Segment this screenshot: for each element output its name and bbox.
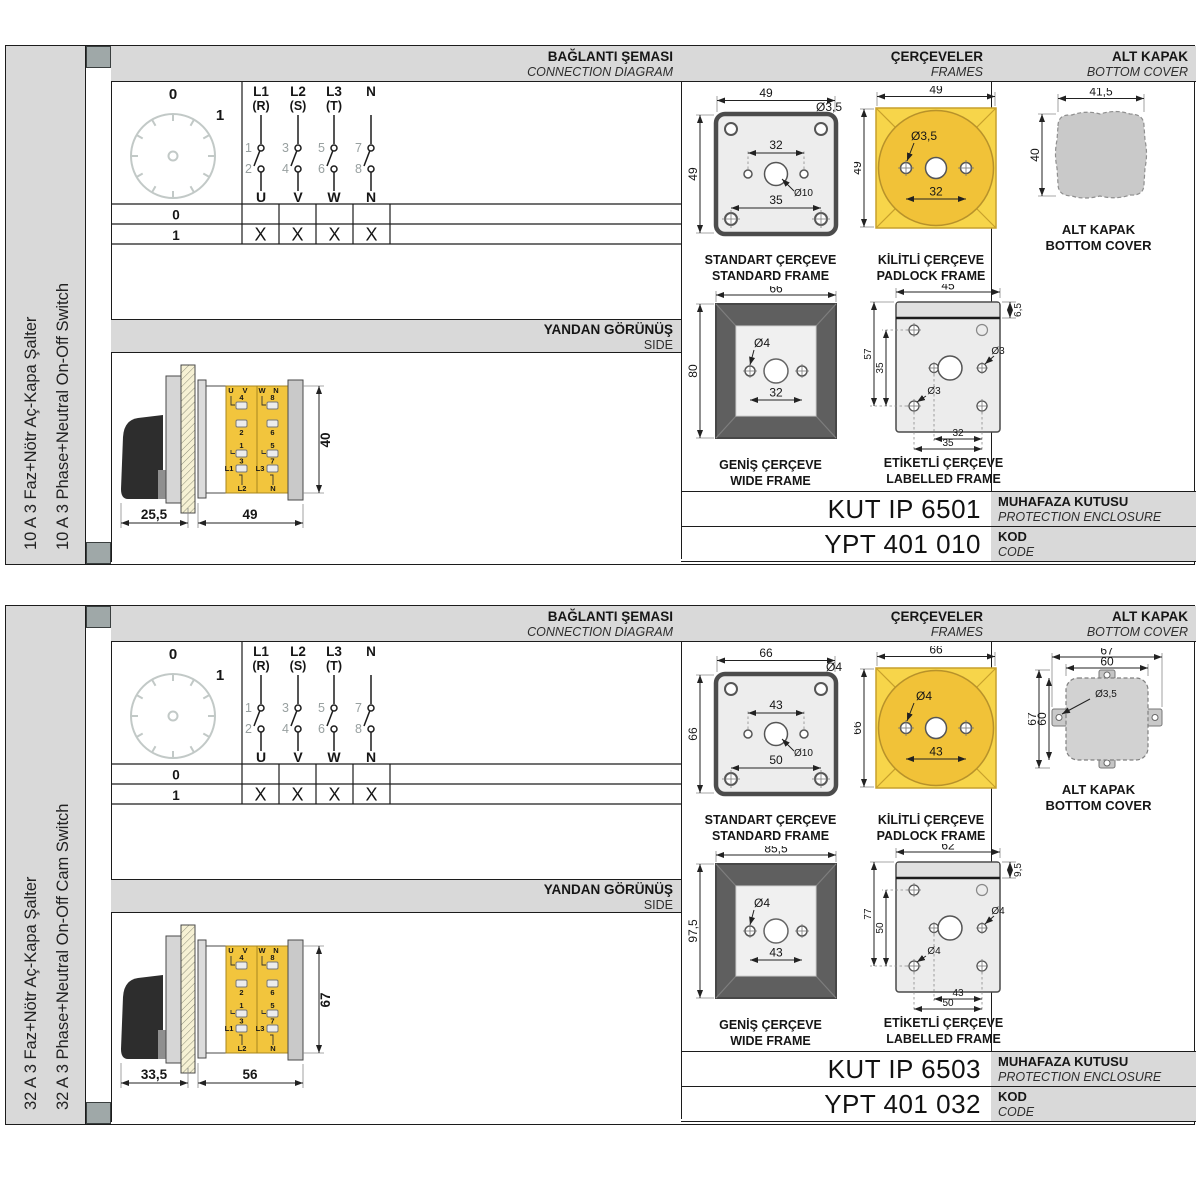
dim-bottom-spacing: 50 (769, 753, 783, 767)
contact-in: 5 (318, 141, 325, 155)
dim-hole: Ø4 (754, 336, 770, 350)
connection-diagram: 0 1 L1 (R) 1 2 U L2 (S) 3 4 V L3 (T) (111, 642, 681, 806)
dial-position-off: 0 (169, 86, 177, 103)
phase-label: L1 (253, 644, 269, 659)
phase-label: L3 (326, 84, 342, 99)
caption-en: STANDARD FRAME (678, 829, 863, 845)
dial-position-on: 1 (216, 107, 224, 124)
header-frames-en: FRAMES (681, 625, 983, 640)
dim-center-hole: Ø10 (794, 188, 813, 199)
padlock-frame-drawing: 49 49 Ø3,5 32 (854, 86, 1009, 251)
enclosure-label-en: PROTECTION ENCLOSURE (998, 1070, 1192, 1085)
shaft-hole (926, 718, 947, 739)
caption-tr: ALT KAPAK (1001, 222, 1196, 238)
code-label: KOD CODE (991, 526, 1196, 561)
dim-width-inner: 60 (1100, 655, 1114, 669)
term-l2: L2 (238, 484, 247, 493)
caption-tr: KİLİTLİ ÇERÇEVE (851, 253, 1011, 269)
header-bottom-cover: ALT KAPAK BOTTOM COVER (991, 46, 1196, 82)
dim-height: 49 (854, 161, 864, 175)
product-title-english: 10 A 3 Phase+Neutral On-Off Switch (54, 58, 73, 550)
connection-diagram: 0 1 L1 (R) 1 2 U L2 (S) 3 4 V L3 (T) (111, 82, 681, 246)
panel-hatch (181, 925, 195, 1073)
enclosure-label: MUHAFAZA KUTUSU PROTECTION ENCLOSURE (991, 1051, 1196, 1086)
product-title-english: 32 A 3 Phase+Neutral On-Off Cam Switch (54, 618, 73, 1110)
dim-handle-depth: 33,5 (141, 1067, 168, 1082)
side-view-drawing: U V W N 4 2 1 3 8 6 5 7 L1 L2 L3 N 40 25… (118, 358, 418, 543)
caption-en: STANDARD FRAME (678, 269, 863, 285)
dim-hole-right: Ø3 (991, 346, 1005, 357)
dim-center-hole: Ø10 (794, 748, 813, 759)
product-section: 10 A 3 Faz+Nötr Aç-Kapa Şalter 10 A 3 Ph… (5, 45, 1195, 565)
contact-out: 4 (282, 722, 289, 736)
switch-handle (121, 975, 163, 1059)
dim-strip: 6,5 (1013, 303, 1024, 317)
contact-out: 8 (355, 162, 362, 176)
table-pos-1: 1 (172, 228, 180, 243)
header-connection-diagram: BAĞLANTI ŞEMASI CONNECTION DIAGRAM (111, 46, 681, 82)
contact-out: 4 (282, 162, 289, 176)
dim-hole-right: Ø4 (991, 906, 1005, 917)
dim-bottom-inner: 43 (952, 988, 964, 999)
wide-frame-caption: GENİŞ ÇERÇEVE WIDE FRAME (678, 458, 863, 489)
contact-out: 6 (318, 722, 325, 736)
enclosure-code: KUT IP 6501 (681, 491, 991, 526)
side-view-header-tr: YANDAN GÖRÜNÜŞ (111, 882, 673, 898)
dim-height: 66 (688, 727, 700, 741)
term-l1: L1 (225, 464, 234, 473)
switch-dial: 0 1 (131, 646, 224, 758)
term-5: 5 (270, 441, 274, 450)
code-label-en: CODE (998, 545, 1192, 560)
contact-in: 1 (245, 141, 252, 155)
contact-out: 8 (355, 722, 362, 736)
header-connection-tr: BAĞLANTI ŞEMASI (111, 609, 673, 625)
dim-height: 66 (854, 721, 864, 735)
phase-label: L2 (290, 84, 306, 99)
term-1: 1 (239, 1001, 243, 1010)
dim-width: 45 (941, 284, 955, 293)
shaft-hole (926, 158, 947, 179)
dim-hole-spacing: 32 (929, 185, 943, 199)
dim-side-height: 67 (318, 992, 333, 1007)
phase-label: L2 (290, 644, 306, 659)
product-title-band: 32 A 3 Faz+Nötr Aç-Kapa Şalter 32 A 3 Ph… (6, 606, 86, 1124)
dim-bottom-outer: 35 (942, 438, 954, 449)
code-label-tr: KOD (998, 1089, 1192, 1105)
dim-width: 66 (769, 286, 783, 296)
index-tab-bottom (86, 542, 111, 564)
dim-handle-depth: 25,5 (141, 507, 168, 522)
mounting-collar (198, 380, 206, 498)
code-label-tr: KOD (998, 529, 1192, 545)
labelled-frame-drawing: 45 6,5 57 35 Ø3 Ø3 32 35 (858, 284, 1033, 454)
term-3: 3 (239, 457, 243, 466)
contact-column-1: L1 (R) 1 2 U (245, 84, 270, 205)
shaft-hole (764, 919, 788, 943)
term-w: W (258, 946, 266, 955)
labelled-frame-caption: ETİKETLİ ÇERÇEVE LABELLED FRAME (851, 1016, 1036, 1047)
code-label: KOD CODE (991, 1086, 1196, 1121)
caption-en: LABELLED FRAME (851, 472, 1036, 488)
padlock-frame-caption: KİLİTLİ ÇERÇEVE PADLOCK FRAME (851, 253, 1011, 284)
table-mark: X (365, 225, 377, 245)
contact-in: 3 (282, 141, 289, 155)
labelled-frame-drawing: 62 9,5 77 50 Ø4 Ø4 43 50 (858, 844, 1033, 1014)
header-frames: ÇERÇEVELER FRAMES (681, 46, 991, 82)
catalog-page: 10 A 3 Faz+Nötr Aç-Kapa Şalter 10 A 3 Ph… (0, 0, 1200, 1200)
dim-hole: Ø4 (916, 689, 932, 703)
dim-hole: Ø3,5 (1095, 689, 1117, 700)
caption-en: PADLOCK FRAME (851, 269, 1011, 285)
handle-step (158, 470, 166, 499)
index-tab-top (86, 46, 111, 68)
side-view-header: YANDAN GÖRÜNÜŞ SIDE (111, 879, 681, 913)
phase-label: L3 (326, 644, 342, 659)
term-8: 8 (270, 953, 274, 962)
terminal-label: W (327, 189, 341, 205)
header-cover-tr: ALT KAPAK (991, 609, 1188, 625)
header-cover-en: BOTTOM COVER (991, 625, 1188, 640)
phase-label: N (366, 644, 376, 659)
side-view-header: YANDAN GÖRÜNÜŞ SIDE (111, 319, 681, 353)
table-mark: X (328, 225, 340, 245)
table-pos-0: 0 (172, 768, 180, 783)
phase-label: N (366, 84, 376, 99)
padlock-frame-drawing: 66 66 Ø4 43 (854, 646, 1009, 811)
shaft-hole (764, 359, 788, 383)
dial-position-on: 1 (216, 667, 224, 684)
table-mark: X (328, 785, 340, 805)
phase-sub: (S) (290, 659, 307, 673)
table-mark: X (254, 785, 266, 805)
term-l3: L3 (256, 464, 265, 473)
caption-en: PADLOCK FRAME (851, 829, 1011, 845)
table-pos-0: 0 (172, 208, 180, 223)
dim-height-inner: 60 (1035, 712, 1049, 726)
term-2: 2 (239, 988, 243, 997)
term-nn: N (270, 484, 275, 493)
terminal-label: N (366, 189, 376, 205)
dim-hole-spacing: 32 (769, 138, 783, 152)
table-mark: X (254, 225, 266, 245)
bottom-cover-drawing: 67 60 67 60 Ø3,5 (1028, 648, 1178, 778)
phase-sub: (R) (252, 659, 269, 673)
end-cap (288, 940, 303, 1060)
dim-hole-spacing: 32 (769, 386, 783, 400)
header-connection-diagram: BAĞLANTI ŞEMASI CONNECTION DIAGRAM (111, 606, 681, 642)
caption-tr: GENİŞ ÇERÇEVE (678, 1018, 863, 1034)
terminal-label: V (293, 189, 303, 205)
dial-hub (169, 152, 178, 161)
contact-out: 6 (318, 162, 325, 176)
header-cover-en: BOTTOM COVER (991, 65, 1188, 80)
dim-strip: 9,5 (1013, 863, 1024, 877)
contact-in: 5 (318, 701, 325, 715)
term-6: 6 (270, 988, 274, 997)
shaft-hole (938, 916, 962, 940)
contact-column-2: L2 (S) 3 4 V (282, 84, 306, 205)
contact-column-4: N 7 8 N (355, 84, 376, 205)
caption-tr: STANDART ÇERÇEVE (678, 813, 863, 829)
bottom-cover-caption: ALT KAPAK BOTTOM COVER (1001, 222, 1196, 255)
dim-v-spacing: 35 (875, 362, 886, 374)
phase-sub: (S) (290, 99, 307, 113)
term-u: U (228, 386, 233, 395)
term-1: 1 (239, 441, 243, 450)
dim-width: 62 (941, 844, 955, 853)
table-pos-1: 1 (172, 788, 180, 803)
caption-tr: ETİKETLİ ÇERÇEVE (851, 1016, 1036, 1032)
header-frames-tr: ÇERÇEVELER (681, 49, 983, 65)
label-strip (897, 863, 999, 878)
handle-step (158, 1030, 166, 1059)
contact-column-3: L3 (T) 5 6 W (318, 84, 342, 205)
order-code: YPT 401 010 (681, 526, 991, 561)
header-connection-en: CONNECTION DIAGRAM (111, 65, 673, 80)
caption-tr: STANDART ÇERÇEVE (678, 253, 863, 269)
side-view-header-en: SIDE (111, 338, 673, 353)
table-mark: X (291, 225, 303, 245)
cover-outline (1056, 112, 1147, 199)
wide-frame-caption: GENİŞ ÇERÇEVE WIDE FRAME (678, 1018, 863, 1049)
terminal-label: U (256, 749, 266, 765)
phase-label: L1 (253, 84, 269, 99)
standard-frame-drawing: 49 Ø3,5 49 32 Ø10 35 (688, 86, 858, 251)
header-cover-tr: ALT KAPAK (991, 49, 1188, 65)
dim-width: 66 (759, 646, 773, 660)
contact-in: 7 (355, 701, 362, 715)
product-section: 32 A 3 Faz+Nötr Aç-Kapa Şalter 32 A 3 Ph… (5, 605, 1195, 1125)
bottom-cover-drawing: 41,5 40 (1028, 88, 1178, 218)
dim-width: 41,5 (1089, 88, 1113, 99)
index-tab-bottom (86, 1102, 111, 1124)
shaft-hole (765, 723, 788, 746)
code-label-en: CODE (998, 1105, 1192, 1120)
dim-width: 49 (929, 86, 943, 97)
term-u: U (228, 946, 233, 955)
dim-hole-spacing: 43 (929, 745, 943, 759)
terminal-label: U (256, 189, 266, 205)
term-3: 3 (239, 1017, 243, 1026)
dim-bottom-spacing: 35 (769, 193, 783, 207)
dim-width: 66 (929, 646, 943, 657)
term-6: 6 (270, 428, 274, 437)
caption-en: WIDE FRAME (678, 1034, 863, 1050)
wide-frame-drawing: 85,5 97,5 Ø4 43 (688, 846, 858, 1016)
header-connection-en: CONNECTION DIAGRAM (111, 625, 673, 640)
side-view-header-en: SIDE (111, 898, 673, 913)
dim-hole: Ø3,5 (911, 129, 937, 143)
panel-hatch (181, 365, 195, 513)
caption-tr: GENİŞ ÇERÇEVE (678, 458, 863, 474)
dim-hole-spacing: 43 (769, 946, 783, 960)
side-view-drawing: U V W N 4 2 1 3 8 6 5 7 L1 L2 L3 N 67 33… (118, 918, 418, 1103)
truth-table: 0 1 X X X X (111, 204, 681, 245)
term-l3: L3 (256, 1024, 265, 1033)
caption-tr: KİLİTLİ ÇERÇEVE (851, 813, 1011, 829)
product-title-turkish: 32 A 3 Faz+Nötr Aç-Kapa Şalter (22, 618, 41, 1110)
enclosure-label: MUHAFAZA KUTUSU PROTECTION ENCLOSURE (991, 491, 1196, 526)
switch-dial: 0 1 (131, 86, 224, 198)
dim-hole-spacing: 43 (769, 698, 783, 712)
header-frames-tr: ÇERÇEVELER (681, 609, 983, 625)
standard-frame-drawing: 66 Ø4 66 43 Ø10 50 (688, 646, 858, 811)
mounting-collar (198, 940, 206, 1058)
end-cap (288, 380, 303, 500)
term-5: 5 (270, 1001, 274, 1010)
term-8: 8 (270, 393, 274, 402)
switch-handle (121, 415, 163, 499)
dim-body-width: 49 (242, 507, 257, 522)
index-tab-top (86, 606, 111, 628)
truth-table: 0 1 X X X X (111, 764, 681, 805)
dim-height: 77 (863, 908, 874, 920)
dim-v-spacing: 50 (875, 922, 886, 934)
caption-en: BOTTOM COVER (1001, 798, 1196, 814)
terminal-label: N (366, 749, 376, 765)
enclosure-label-tr: MUHAFAZA KUTUSU (998, 1054, 1192, 1070)
enclosure-code: KUT IP 6503 (681, 1051, 991, 1086)
contact-in: 3 (282, 701, 289, 715)
dim-height: 49 (688, 167, 700, 181)
phase-sub: (R) (252, 99, 269, 113)
dial-hub (169, 712, 178, 721)
table-mark: X (291, 785, 303, 805)
label-strip (897, 303, 999, 318)
contact-in: 7 (355, 141, 362, 155)
term-nn: N (270, 1044, 275, 1053)
caption-en: LABELLED FRAME (851, 1032, 1036, 1048)
dim-height: 80 (688, 364, 700, 378)
shaft-hole (938, 356, 962, 380)
term-w: W (258, 386, 266, 395)
wide-frame-drawing: 66 80 Ø4 32 (688, 286, 858, 456)
term-l2: L2 (238, 1044, 247, 1053)
contact-column-4: N 7 8 N (355, 644, 376, 765)
caption-tr: ALT KAPAK (1001, 782, 1196, 798)
table-mark: X (365, 785, 377, 805)
term-7: 7 (270, 1017, 274, 1026)
contact-in: 1 (245, 701, 252, 715)
dim-hole: Ø4 (754, 896, 770, 910)
header-frames: ÇERÇEVELER FRAMES (681, 606, 991, 642)
dim-bottom-outer: 50 (942, 998, 954, 1009)
contact-column-1: L1 (R) 1 2 U (245, 644, 270, 765)
term-7: 7 (270, 457, 274, 466)
caption-en: WIDE FRAME (678, 474, 863, 490)
enclosure-label-tr: MUHAFAZA KUTUSU (998, 494, 1192, 510)
contact-out: 2 (245, 162, 252, 176)
terminal-label: V (293, 749, 303, 765)
standard-frame-caption: STANDART ÇERÇEVE STANDARD FRAME (678, 813, 863, 844)
enclosure-label-en: PROTECTION ENCLOSURE (998, 510, 1192, 525)
term-2: 2 (239, 428, 243, 437)
product-title-turkish: 10 A 3 Faz+Nötr Aç-Kapa Şalter (22, 58, 41, 550)
labelled-frame-caption: ETİKETLİ ÇERÇEVE LABELLED FRAME (851, 456, 1036, 487)
header-frames-en: FRAMES (681, 65, 983, 80)
header-bottom-cover: ALT KAPAK BOTTOM COVER (991, 606, 1196, 642)
padlock-frame-caption: KİLİTLİ ÇERÇEVE PADLOCK FRAME (851, 813, 1011, 844)
contact-column-3: L3 (T) 5 6 W (318, 644, 342, 765)
contact-column-2: L2 (S) 3 4 V (282, 644, 306, 765)
divider (681, 561, 1196, 562)
dim-height: 40 (1028, 148, 1042, 162)
dim-height: 97,5 (688, 919, 700, 943)
terminal-label: W (327, 749, 341, 765)
dim-height: 57 (863, 348, 874, 360)
dim-width: 85,5 (764, 846, 788, 856)
dim-width: 49 (759, 86, 773, 100)
dim-side-height: 40 (318, 432, 333, 447)
phase-sub: (T) (326, 99, 342, 113)
caption-tr: ETİKETLİ ÇERÇEVE (851, 456, 1036, 472)
caption-en: BOTTOM COVER (1001, 238, 1196, 254)
dim-bottom-inner: 32 (952, 428, 964, 439)
contact-out: 2 (245, 722, 252, 736)
dial-position-off: 0 (169, 646, 177, 663)
phase-sub: (T) (326, 659, 342, 673)
shaft-hole (765, 163, 788, 186)
order-code: YPT 401 032 (681, 1086, 991, 1121)
standard-frame-caption: STANDART ÇERÇEVE STANDARD FRAME (678, 253, 863, 284)
side-view-header-tr: YANDAN GÖRÜNÜŞ (111, 322, 673, 338)
bottom-cover-caption: ALT KAPAK BOTTOM COVER (1001, 782, 1196, 815)
dim-body-width: 56 (242, 1067, 258, 1082)
header-connection-tr: BAĞLANTI ŞEMASI (111, 49, 673, 65)
product-title-band: 10 A 3 Faz+Nötr Aç-Kapa Şalter 10 A 3 Ph… (6, 46, 86, 564)
divider (681, 1121, 1196, 1122)
term-l1: L1 (225, 1024, 234, 1033)
